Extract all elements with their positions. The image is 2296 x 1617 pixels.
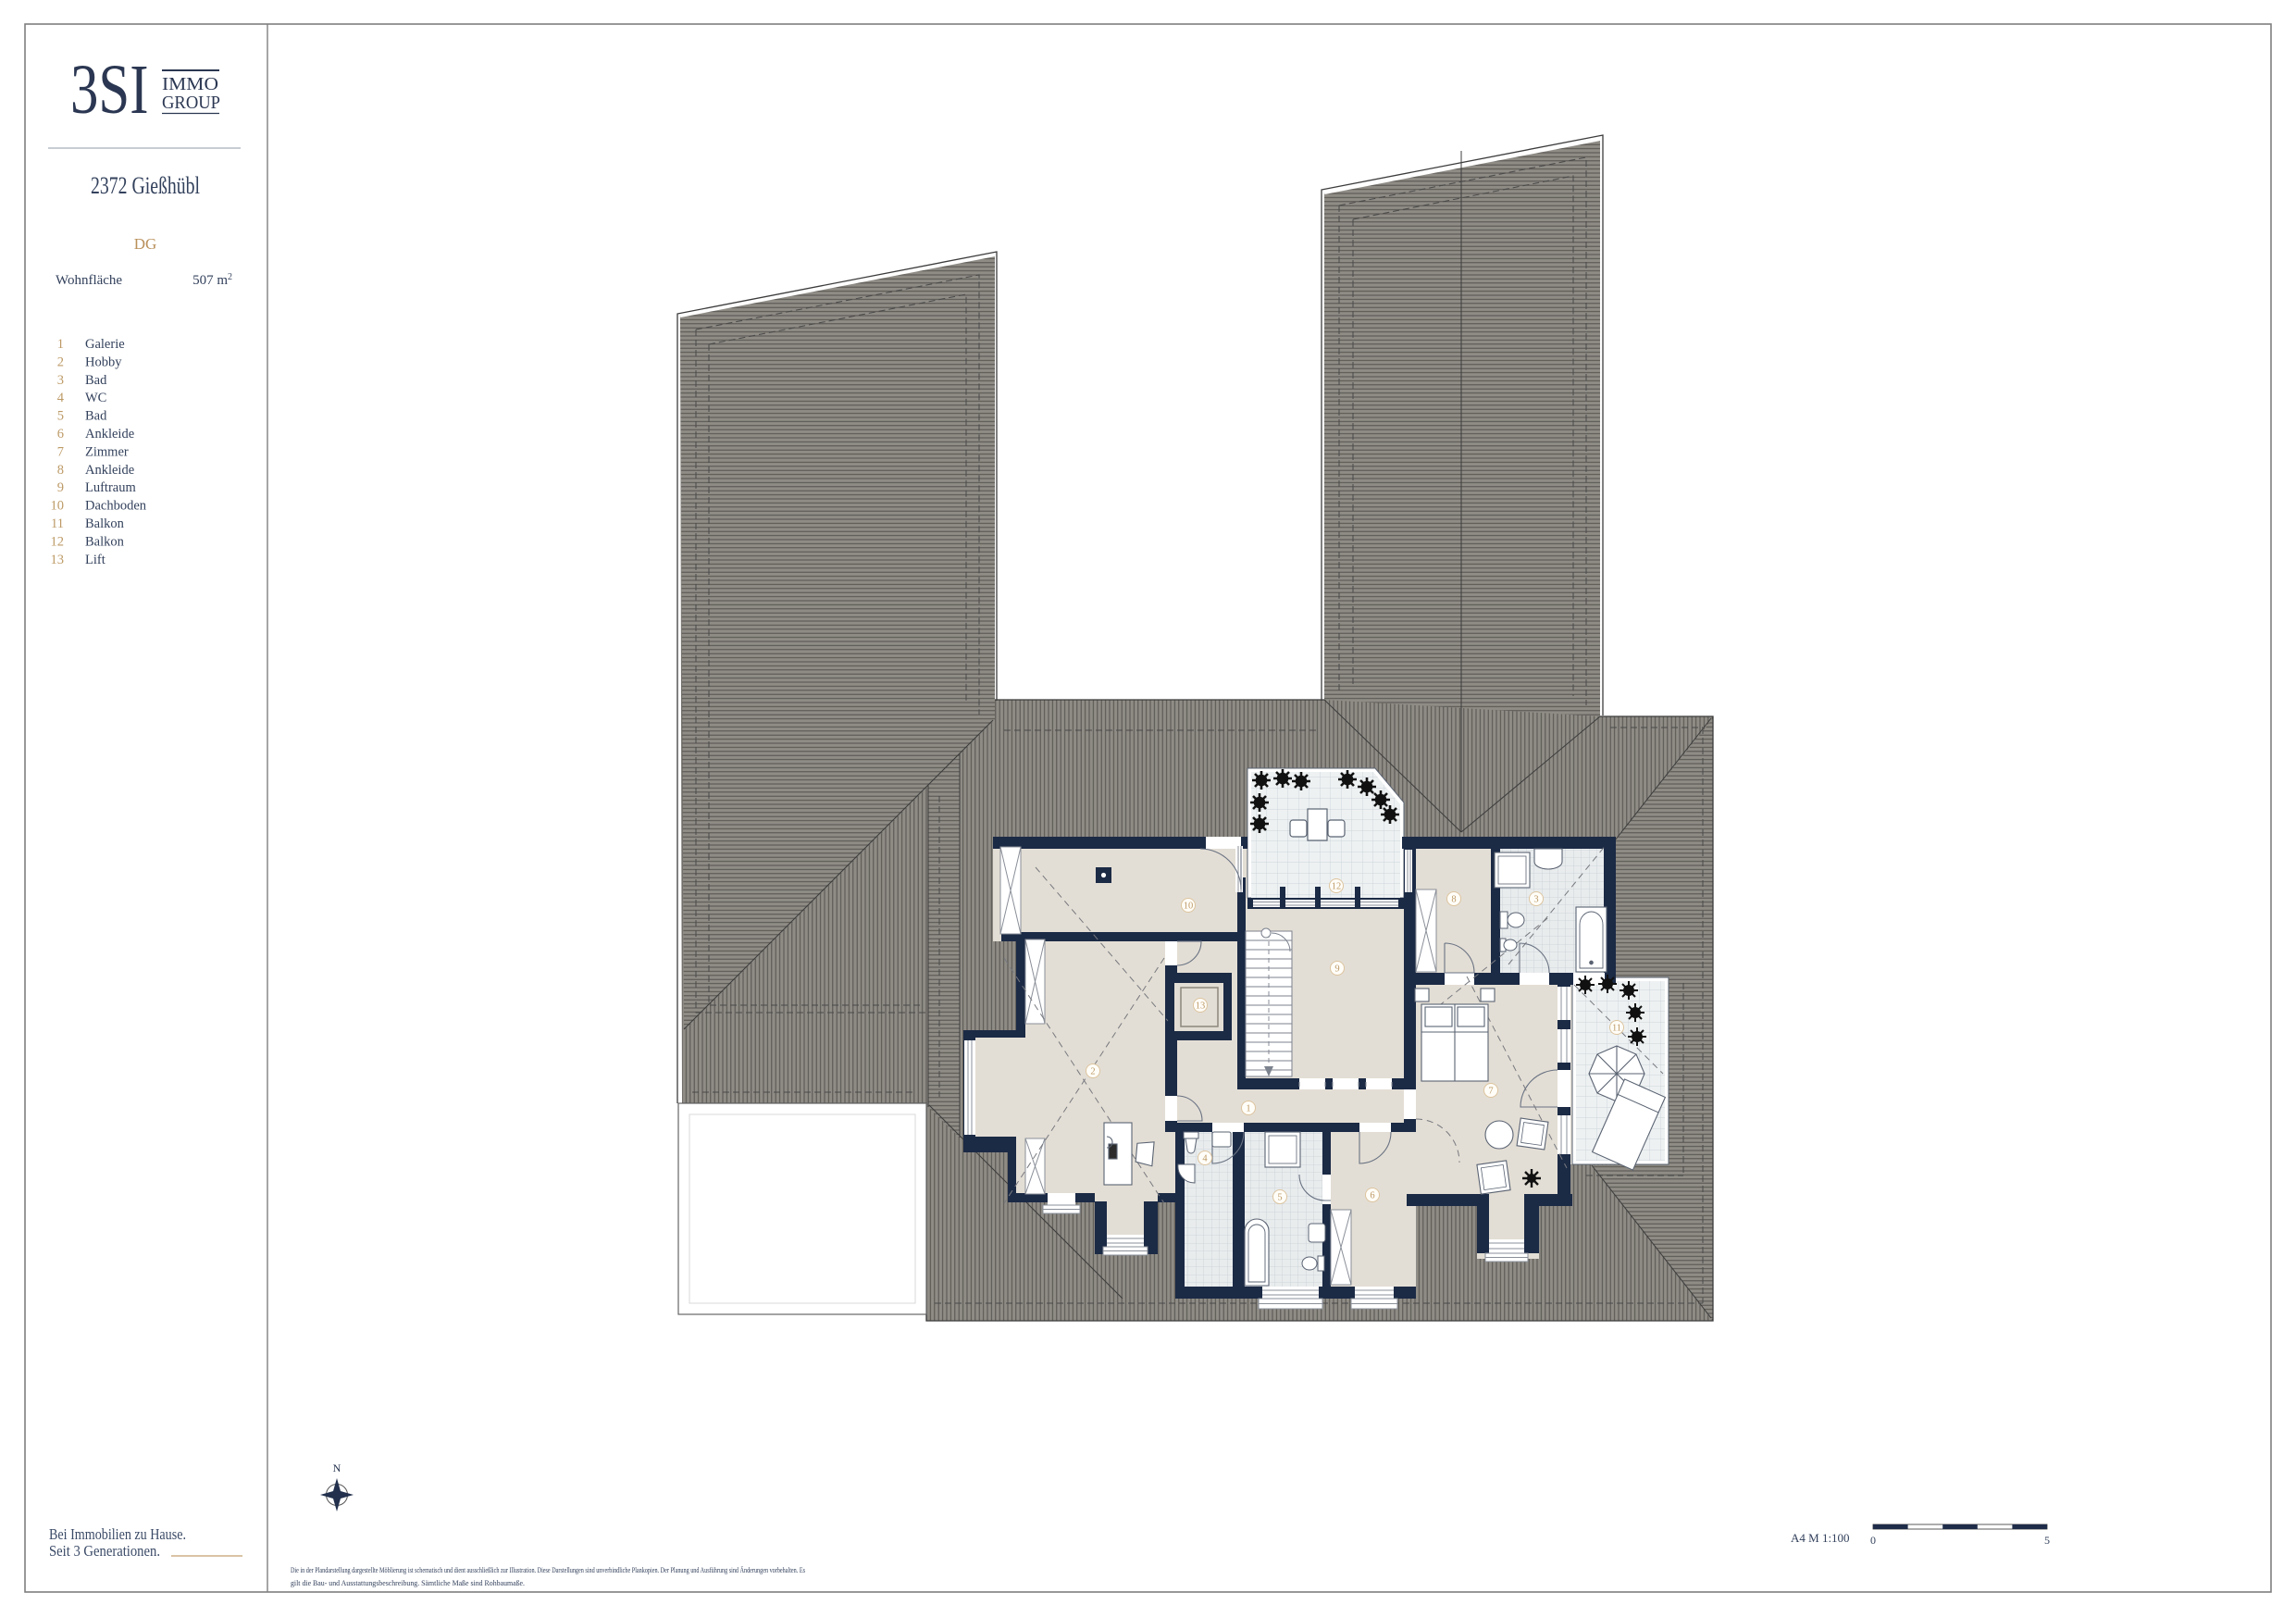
svg-text:Dachboden: Dachboden bbox=[85, 499, 147, 514]
svg-text:Ankleide: Ankleide bbox=[85, 463, 134, 478]
svg-text:10: 10 bbox=[1184, 902, 1194, 912]
svg-text:9: 9 bbox=[1334, 964, 1339, 975]
svg-text:1: 1 bbox=[57, 337, 64, 352]
svg-text:Bad: Bad bbox=[85, 409, 107, 424]
svg-text:4: 4 bbox=[1202, 1154, 1208, 1164]
svg-text:5: 5 bbox=[2044, 1534, 2050, 1547]
svg-text:3: 3 bbox=[1533, 895, 1538, 905]
svg-text:IMMO: IMMO bbox=[162, 74, 218, 94]
svg-text:Hobby: Hobby bbox=[85, 354, 122, 369]
svg-text:gilt die Bau- und Ausstattungs: gilt die Bau- und Ausstattungsbeschreibu… bbox=[291, 1578, 525, 1587]
svg-text:WC: WC bbox=[85, 391, 106, 405]
svg-text:DG: DG bbox=[134, 235, 157, 253]
svg-text:2: 2 bbox=[1090, 1067, 1095, 1077]
svg-text:7: 7 bbox=[57, 444, 64, 459]
svg-text:11: 11 bbox=[51, 516, 64, 531]
svg-text:Bei Immobilien zu Hause.: Bei Immobilien zu Hause. bbox=[49, 1525, 186, 1543]
svg-text:Seit 3 Generationen.: Seit 3 Generationen. bbox=[49, 1542, 160, 1560]
svg-text:6: 6 bbox=[57, 427, 64, 442]
svg-text:0: 0 bbox=[1870, 1534, 1876, 1547]
svg-text:Wohnfläche: Wohnfläche bbox=[56, 273, 122, 288]
svg-text:Die in der Plandarstellung dar: Die in der Plandarstellung dargestellte … bbox=[291, 1565, 805, 1574]
svg-text:13: 13 bbox=[1196, 1001, 1206, 1012]
svg-text:12: 12 bbox=[51, 534, 65, 549]
svg-text:GROUP: GROUP bbox=[162, 93, 220, 113]
svg-text:3SI: 3SI bbox=[70, 51, 148, 129]
svg-text:5: 5 bbox=[1277, 1193, 1282, 1203]
svg-text:2372 Gießhübl: 2372 Gießhübl bbox=[91, 172, 200, 199]
svg-text:Luftraum: Luftraum bbox=[85, 480, 136, 495]
svg-text:7: 7 bbox=[1488, 1087, 1493, 1097]
svg-text:Balkon: Balkon bbox=[85, 534, 125, 549]
svg-text:6: 6 bbox=[1370, 1191, 1374, 1201]
svg-text:5: 5 bbox=[57, 409, 64, 424]
svg-text:10: 10 bbox=[51, 499, 65, 514]
svg-text:Zimmer: Zimmer bbox=[85, 444, 129, 459]
svg-text:12: 12 bbox=[1332, 882, 1342, 892]
svg-text:11: 11 bbox=[1612, 1024, 1621, 1034]
svg-text:Lift: Lift bbox=[85, 553, 105, 567]
svg-text:8: 8 bbox=[57, 463, 64, 478]
svg-text:13: 13 bbox=[51, 553, 65, 567]
svg-text:507 m2: 507 m2 bbox=[192, 272, 232, 288]
svg-text:1: 1 bbox=[1246, 1104, 1250, 1114]
svg-text:3: 3 bbox=[57, 373, 64, 388]
svg-text:Balkon: Balkon bbox=[85, 516, 125, 531]
svg-text:Bad: Bad bbox=[85, 373, 107, 388]
svg-text:A4 M 1:100: A4 M 1:100 bbox=[1791, 1531, 1850, 1545]
svg-text:9: 9 bbox=[57, 480, 64, 495]
svg-text:Galerie: Galerie bbox=[85, 337, 125, 352]
svg-text:N: N bbox=[333, 1462, 341, 1474]
svg-text:4: 4 bbox=[57, 391, 65, 405]
svg-text:Ankleide: Ankleide bbox=[85, 427, 134, 442]
svg-text:8: 8 bbox=[1451, 895, 1456, 905]
svg-text:2: 2 bbox=[57, 354, 64, 369]
